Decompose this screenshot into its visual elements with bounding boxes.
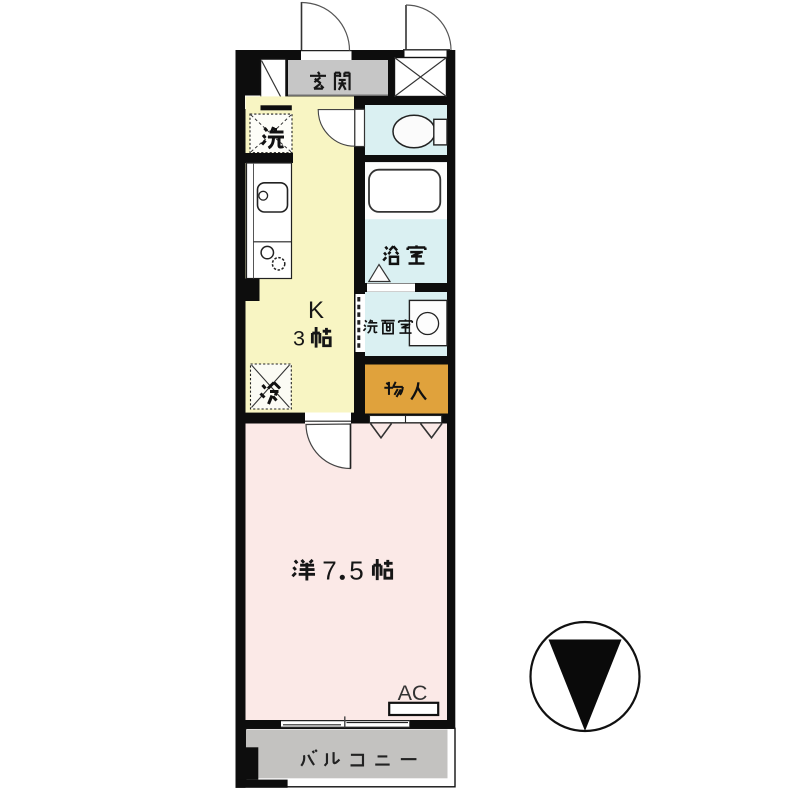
- svg-text:7: 7: [322, 556, 336, 586]
- svg-text:3: 3: [293, 327, 305, 351]
- svg-text:K: K: [308, 297, 324, 324]
- svg-text:5: 5: [349, 556, 363, 586]
- svg-text:AC: AC: [398, 681, 428, 705]
